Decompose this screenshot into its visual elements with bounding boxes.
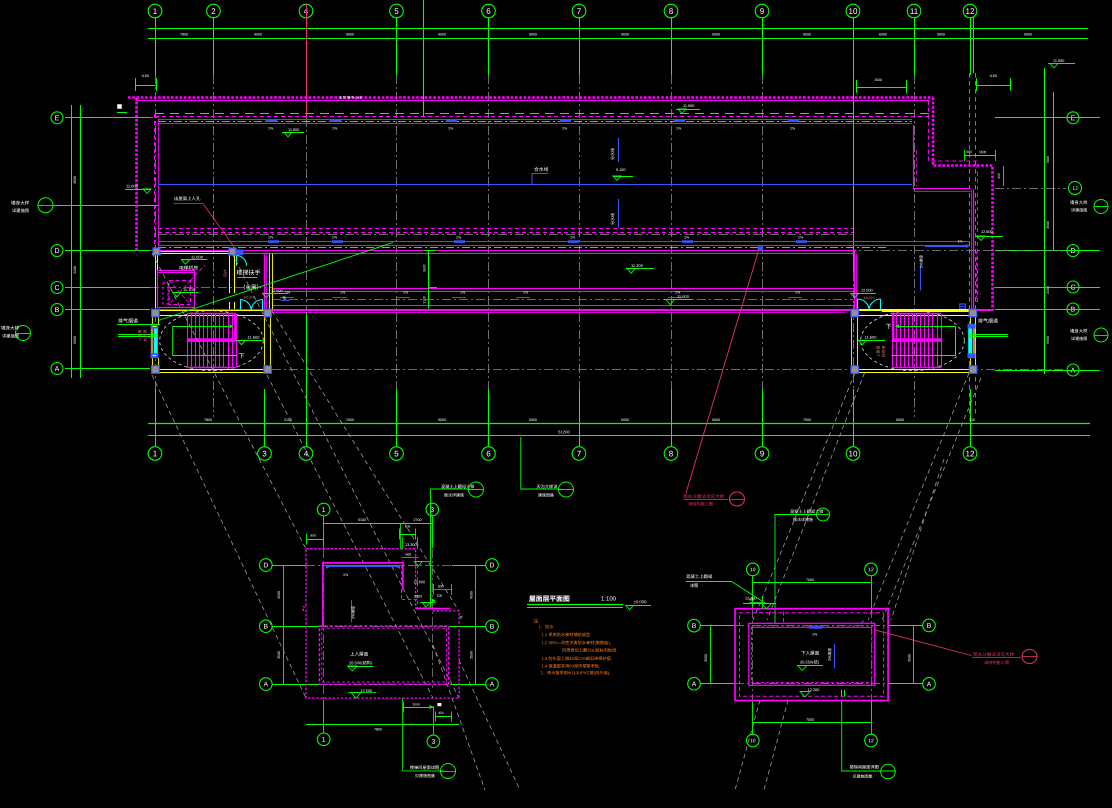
svg-text:检修用: 检修用 [143, 329, 148, 341]
svg-text:9000: 9000 [712, 32, 720, 36]
svg-text:1: 1 [322, 737, 326, 744]
svg-text:12: 12 [868, 567, 874, 573]
svg-text:见建施图集: 见建施图集 [415, 772, 435, 778]
svg-text:11.600: 11.600 [683, 104, 694, 108]
svg-text:12: 12 [966, 7, 975, 16]
svg-text:6000: 6000 [1024, 32, 1032, 36]
svg-text:1.2 SBS—改性沭青防水卷材(聚酰胎),: 1.2 SBS—改性沭青防水卷材(聚酰胎), [541, 639, 611, 646]
svg-text:11.800: 11.800 [288, 128, 299, 132]
svg-text:1%: 1% [332, 235, 338, 239]
svg-text:1%: 1% [332, 126, 338, 130]
svg-text:1.3 防水层上做40厚C20细石砖保护层,: 1.3 防水层上做40厚C20细石砖保护层, [541, 655, 612, 662]
svg-text:1100: 1100 [989, 74, 997, 78]
svg-text:2000: 2000 [412, 702, 420, 706]
svg-text:6000: 6000 [712, 418, 720, 422]
svg-text:3600: 3600 [73, 176, 77, 184]
svg-text:4: 4 [304, 449, 309, 458]
svg-text:3: 3 [432, 739, 436, 746]
svg-text:4500: 4500 [469, 591, 473, 599]
svg-text:5: 5 [394, 7, 399, 16]
svg-text:10: 10 [750, 738, 756, 744]
svg-text:5: 5 [394, 449, 399, 458]
svg-text:A: A [927, 681, 932, 688]
svg-text:合水线: 合水线 [534, 166, 549, 173]
svg-text:四周卷边上翻250,胶粘剂粘结.: 四周卷边上翻250,胶粘剂粘结. [562, 647, 617, 654]
svg-text:1%: 1% [523, 290, 529, 294]
svg-text:9000: 9000 [529, 32, 537, 36]
svg-text:2%坡度: 2%坡度 [919, 255, 924, 268]
svg-text:3500: 3500 [907, 654, 911, 662]
svg-text:1500: 1500 [874, 78, 882, 82]
svg-text:7: 7 [577, 449, 582, 458]
svg-text:下: 下 [885, 323, 891, 330]
svg-text:1%: 1% [268, 235, 274, 239]
svg-text:电梯机房: 电梯机房 [179, 264, 198, 271]
svg-text:12.500: 12.500 [271, 289, 283, 293]
svg-text:排气烟道: 排气烟道 [118, 317, 138, 324]
svg-text:雨水斗做法详见大样: 雨水斗做法详见大样 [973, 651, 1015, 658]
svg-text:1100: 1100 [979, 150, 986, 154]
svg-text:详建施图: 详建施图 [1071, 335, 1087, 341]
svg-text:100: 100 [437, 594, 443, 598]
svg-text:9.100: 9.100 [616, 168, 626, 172]
svg-text:见建施图集: 见建施图集 [852, 773, 872, 779]
svg-text:2%坡度: 2%坡度 [827, 648, 832, 661]
svg-text:上屋面: 上屋面 [137, 329, 142, 341]
svg-text:9000: 9000 [621, 32, 629, 36]
svg-text:详结构施工图: 详结构施工图 [984, 659, 1009, 666]
svg-text:11.600: 11.600 [126, 183, 139, 188]
svg-text:A: A [264, 681, 269, 688]
svg-text:1:100: 1:100 [601, 596, 617, 602]
svg-text:1%: 1% [676, 126, 682, 130]
svg-text:D: D [490, 562, 495, 569]
svg-text:检修用: 检修用 [881, 345, 886, 357]
svg-text:10: 10 [849, 449, 858, 458]
svg-text:9000: 9000 [346, 32, 354, 36]
svg-text:1%: 1% [448, 126, 454, 130]
svg-text:5100: 5100 [358, 518, 366, 522]
svg-text:2700: 2700 [413, 518, 421, 522]
svg-text:2、雨水管采用Φ110UPVC管(同外墙).: 2、雨水管采用Φ110UPVC管(同外墙). [540, 669, 610, 676]
svg-text:600: 600 [405, 552, 411, 556]
svg-text:上屋面: 上屋面 [876, 345, 881, 357]
svg-text:B: B [55, 307, 60, 314]
svg-text:1%: 1% [403, 290, 409, 294]
svg-text:8: 8 [669, 449, 674, 458]
svg-text:4500: 4500 [1046, 221, 1050, 229]
svg-text:1.4 保温层采用60厚挤塑聚苯板,: 1.4 保温层采用60厚挤塑聚苯板, [541, 662, 600, 669]
svg-text:楼梯间屋面详图: 楼梯间屋面详图 [410, 764, 439, 771]
svg-text:1: 1 [322, 507, 326, 514]
svg-text:3: 3 [430, 507, 434, 514]
svg-text:墙身大样: 墙身大样 [1070, 199, 1088, 206]
svg-text:1%: 1% [460, 290, 466, 294]
svg-text:11.600: 11.600 [677, 294, 690, 299]
svg-text:7800: 7800 [374, 727, 382, 731]
svg-text:9000: 9000 [438, 418, 446, 422]
svg-text:女兒墙中心线: 女兒墙中心线 [339, 95, 362, 100]
svg-text:12: 12 [868, 738, 874, 744]
svg-text:±0.000: ±0.000 [633, 599, 646, 604]
svg-text:3500: 3500 [704, 654, 708, 662]
svg-text:2%坡度: 2%坡度 [351, 606, 356, 619]
svg-text:墙身大样: 墙身大样 [1, 324, 20, 331]
svg-text:2100: 2100 [423, 296, 427, 304]
svg-text:3600: 3600 [423, 264, 427, 272]
svg-text:300: 300 [969, 418, 975, 422]
svg-text:下: 下 [459, 615, 463, 620]
svg-text:D: D [54, 248, 59, 255]
svg-text:1%: 1% [795, 290, 801, 294]
svg-text:分水线: 分水线 [609, 213, 615, 225]
svg-text:楼梯间屋面详图: 楼梯间屋面详图 [849, 763, 878, 770]
svg-text:300: 300 [966, 150, 972, 154]
svg-text:2: 2 [211, 7, 216, 16]
svg-text:9: 9 [760, 7, 765, 16]
svg-text:排气烟道: 排气烟道 [978, 317, 998, 324]
svg-text:C: C [54, 285, 59, 292]
svg-text:7800: 7800 [180, 32, 188, 36]
svg-text:6: 6 [486, 449, 491, 458]
svg-text:10: 10 [849, 7, 858, 16]
svg-text:A: A [490, 681, 495, 688]
svg-text:详结构施工图: 详结构施工图 [688, 500, 713, 507]
svg-text:13.600: 13.600 [413, 580, 425, 584]
svg-text:7800: 7800 [204, 418, 212, 422]
svg-text:7500: 7500 [803, 418, 811, 422]
svg-text:900: 900 [310, 533, 316, 537]
svg-text:13.300: 13.300 [405, 543, 417, 547]
svg-text:上人屋面: 上人屋面 [350, 650, 369, 657]
svg-text:1%: 1% [268, 126, 274, 130]
svg-text:600: 600 [405, 524, 411, 528]
svg-text:9000: 9000 [803, 32, 811, 36]
svg-text:26.500(结构): 26.500(结构) [349, 659, 373, 665]
svg-text:A: A [55, 366, 60, 373]
svg-text:B: B [490, 624, 495, 631]
svg-text:分水线: 分水线 [609, 148, 615, 160]
svg-text:8: 8 [669, 7, 674, 16]
svg-text:11: 11 [910, 7, 919, 16]
svg-text:E: E [55, 115, 60, 122]
svg-text:1100: 1100 [141, 74, 149, 78]
svg-text:做法详建施: 做法详建施 [444, 491, 464, 497]
svg-text:详建施图: 详建施图 [1071, 206, 1087, 212]
svg-text:5900: 5900 [73, 336, 77, 344]
svg-text:5600: 5600 [937, 32, 945, 36]
svg-text:1%: 1% [562, 126, 568, 130]
svg-text:1.1 采用防水卷材铺贴成型: 1.1 采用防水卷材铺贴成型 [541, 631, 590, 638]
svg-text:1%: 1% [957, 239, 963, 243]
svg-text:B: B [264, 624, 269, 631]
svg-text:9000: 9000 [438, 32, 446, 36]
svg-text:11.600: 11.600 [864, 335, 877, 340]
svg-text:1: 1 [153, 449, 158, 458]
svg-text:12: 12 [966, 449, 975, 458]
svg-text:A: A [692, 681, 697, 688]
svg-text:1%: 1% [798, 235, 804, 239]
svg-text:1: 1 [153, 7, 158, 16]
svg-text:450: 450 [438, 711, 444, 715]
svg-text:墙身大样: 墙身大样 [11, 199, 30, 206]
svg-text:7000: 7000 [806, 718, 814, 722]
svg-text:1%: 1% [790, 126, 796, 130]
svg-text:1J: 1J [1072, 186, 1078, 192]
svg-text:1500: 1500 [346, 418, 354, 422]
svg-text:500: 500 [438, 584, 444, 588]
svg-text:51200: 51200 [558, 429, 570, 434]
svg-text:1、防水: 1、防水 [539, 623, 555, 630]
svg-text:5900: 5900 [1046, 336, 1050, 344]
svg-text:3500: 3500 [469, 651, 473, 659]
svg-text:M1021: M1021 [864, 296, 874, 300]
svg-text:1%: 1% [684, 235, 690, 239]
svg-text:6000: 6000 [879, 32, 887, 36]
svg-text:做法详建施: 做法详建施 [793, 516, 813, 522]
svg-text:D: D [263, 562, 268, 569]
svg-text:6000: 6000 [529, 418, 537, 422]
svg-text:混凝土上翻梁大样: 混凝土上翻梁大样 [790, 508, 824, 515]
svg-text:6000: 6000 [621, 418, 629, 422]
svg-text:M1024: M1024 [244, 295, 254, 299]
svg-text:4500: 4500 [277, 591, 281, 599]
svg-text:E: E [1071, 115, 1076, 122]
svg-text:11.600: 11.600 [247, 335, 260, 340]
svg-text:12.800: 12.800 [981, 230, 993, 234]
svg-text:1%: 1% [812, 632, 818, 636]
svg-text:26.550(结): 26.550(结) [800, 658, 820, 664]
svg-text:屋面层平面图: 屋面层平面图 [529, 594, 570, 603]
svg-text:建施图集: 建施图集 [538, 491, 554, 497]
svg-text:3500: 3500 [277, 651, 281, 659]
svg-text:1%: 1% [456, 235, 462, 239]
svg-text:11.200: 11.200 [631, 263, 644, 268]
svg-text:混凝土上翻梁: 混凝土上翻梁 [686, 573, 713, 580]
svg-text:6000: 6000 [896, 418, 904, 422]
svg-text:7: 7 [577, 7, 582, 16]
svg-text:墙身大样: 墙身大样 [1070, 327, 1088, 334]
svg-text:B: B [927, 623, 932, 630]
svg-text:12.500: 12.500 [861, 288, 873, 292]
svg-text:B: B [692, 623, 697, 630]
svg-text:1%: 1% [343, 573, 349, 577]
svg-text:2100: 2100 [73, 266, 77, 274]
svg-text:详建施图: 详建施图 [12, 207, 29, 214]
svg-text:7000: 7000 [1046, 156, 1050, 164]
svg-text:D: D [1070, 248, 1075, 255]
svg-text:7000: 7000 [806, 578, 814, 582]
svg-text:3: 3 [262, 449, 267, 458]
svg-text:出屋面上人孔: 出屋面上人孔 [174, 195, 201, 202]
svg-text:下: 下 [238, 353, 244, 360]
svg-text:2000: 2000 [414, 594, 422, 598]
svg-text:9000: 9000 [254, 32, 262, 36]
svg-text:风井: 风井 [223, 269, 228, 277]
svg-text:9: 9 [760, 449, 765, 458]
svg-text:雨水斗做法详见大样: 雨水斗做法详见大样 [683, 493, 725, 500]
svg-text:11.600: 11.600 [1053, 59, 1064, 63]
svg-text:10: 10 [750, 567, 756, 573]
svg-text:详图: 详图 [690, 582, 698, 589]
svg-text:详建施图: 详建施图 [2, 332, 19, 339]
svg-text:1%: 1% [570, 235, 576, 239]
svg-text:11.100: 11.100 [183, 287, 196, 292]
svg-text:6: 6 [486, 7, 491, 16]
svg-text:900: 900 [997, 173, 1001, 179]
svg-text:1%: 1% [340, 290, 346, 294]
svg-text:11.600: 11.600 [191, 254, 204, 259]
svg-text:600: 600 [749, 597, 755, 601]
